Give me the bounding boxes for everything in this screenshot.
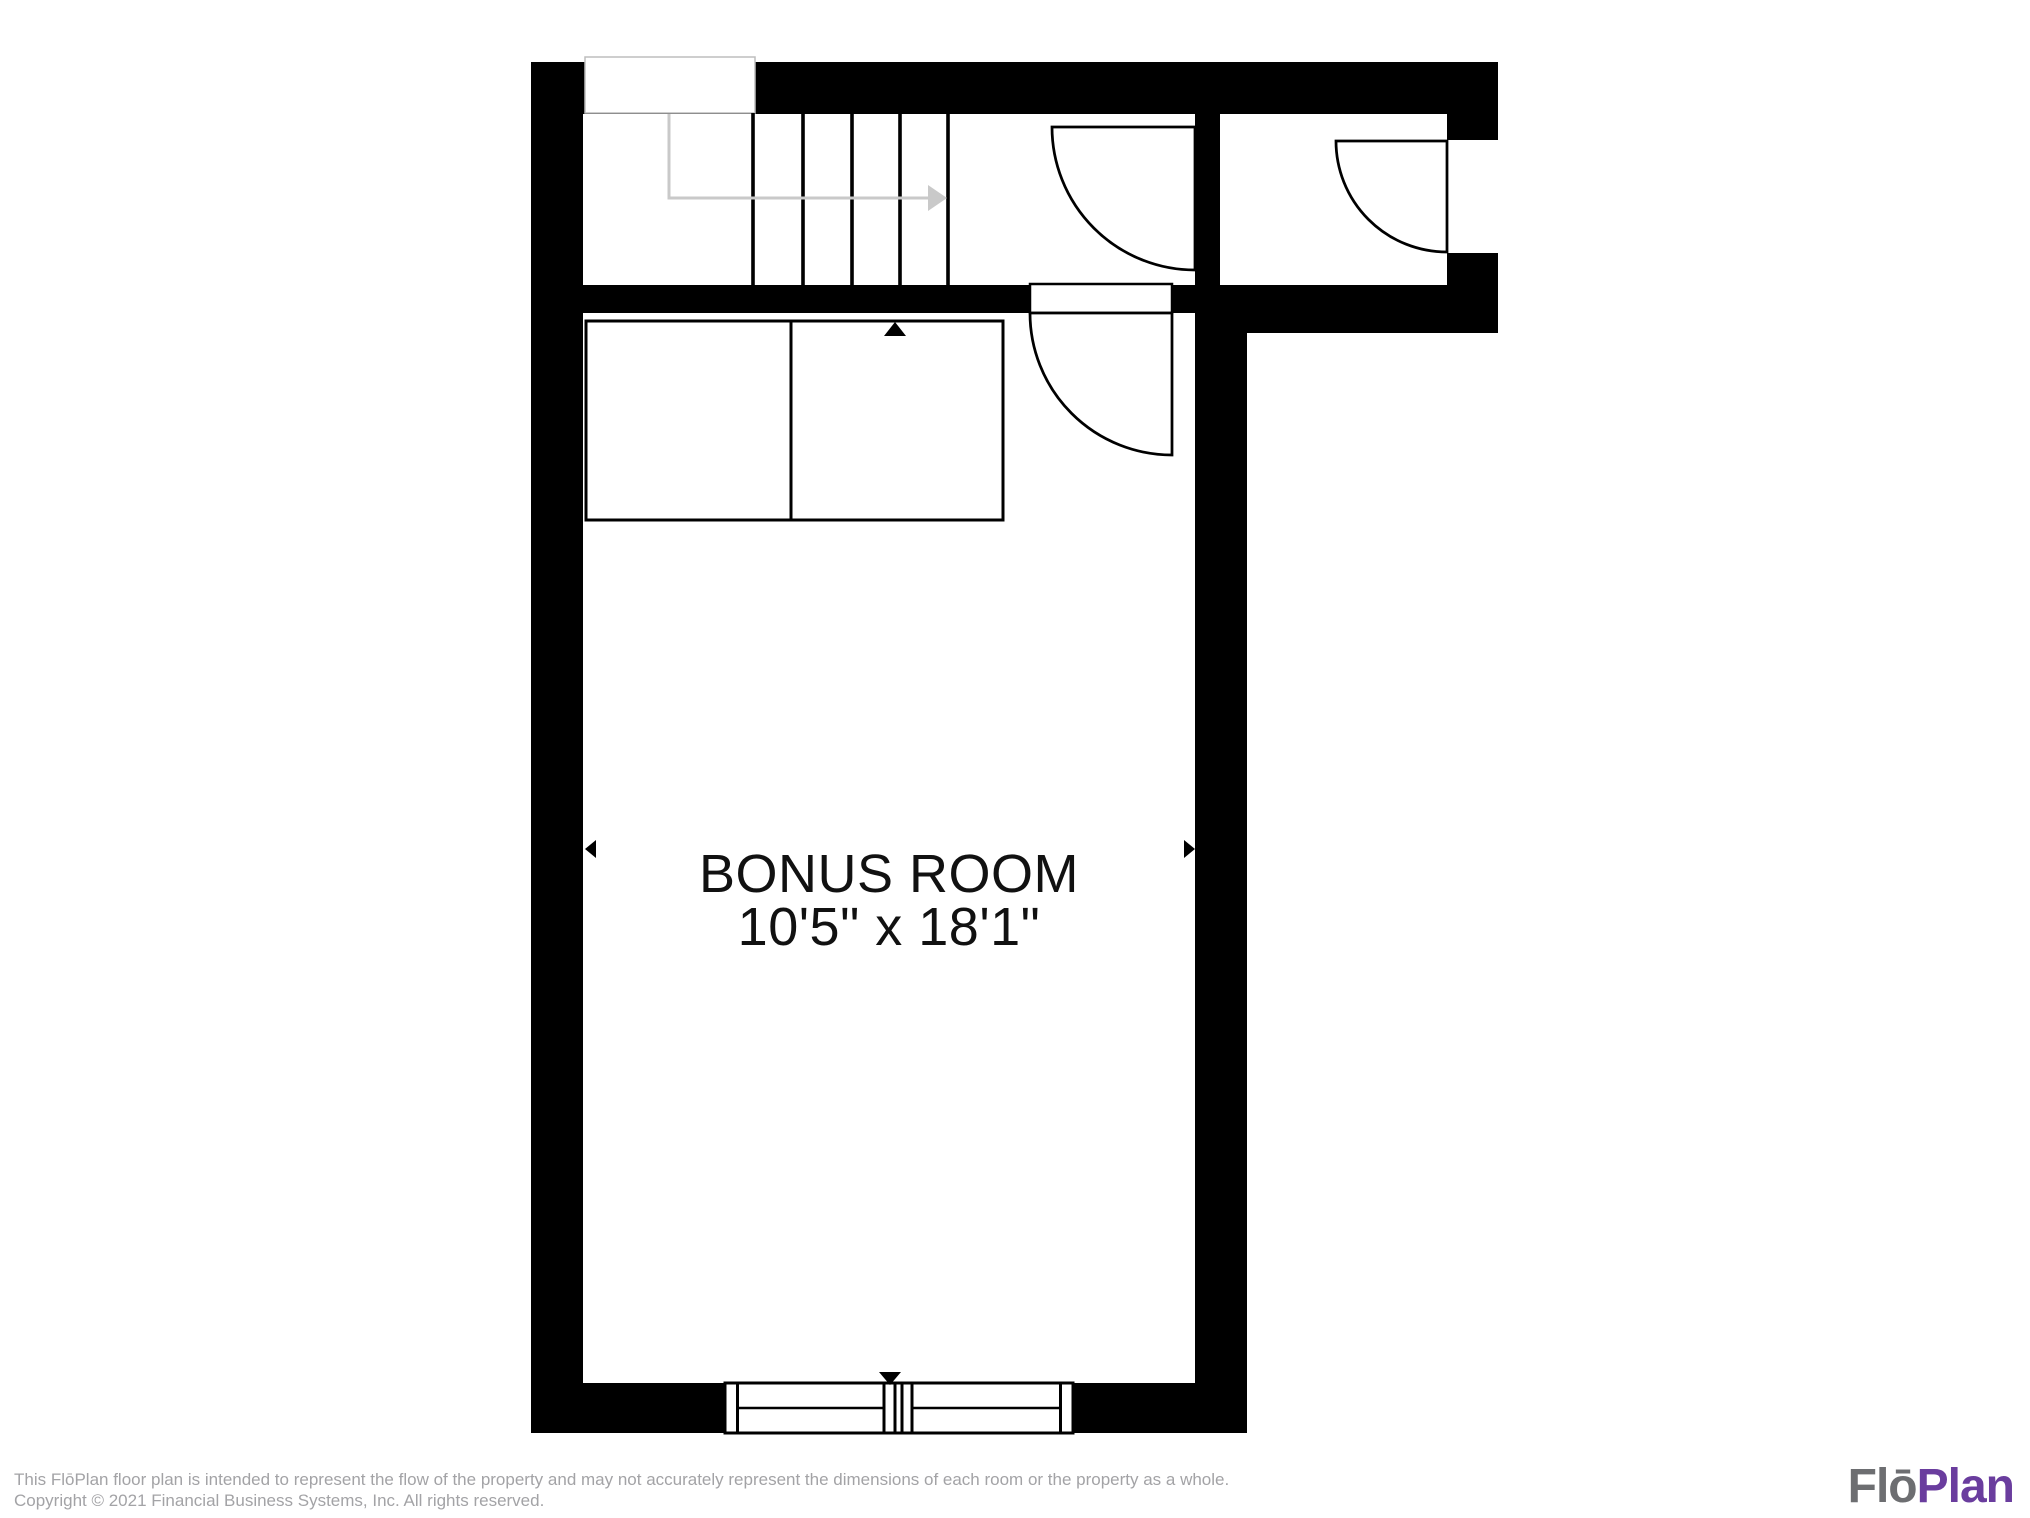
stair-direction-indicator xyxy=(669,114,947,211)
room-name: BONUS ROOM xyxy=(583,848,1195,901)
closet-compartment-left xyxy=(586,321,791,520)
wall-left xyxy=(531,62,583,1433)
door-swing-bonus-room xyxy=(1030,313,1172,455)
footer-copyright: Copyright © 2021 Financial Business Syst… xyxy=(14,1490,1229,1511)
dimension-arrow-up-icon xyxy=(884,322,906,336)
floplan-logo: FlōPlan xyxy=(1848,1459,2014,1514)
closet xyxy=(586,321,1003,520)
page-background: BONUS ROOM 10'5" x 18'1" This FlōPlan fl… xyxy=(0,0,2030,1518)
window-assembly xyxy=(725,1383,1073,1433)
stair-top-notch xyxy=(585,57,755,113)
stair-direction-path xyxy=(669,114,929,198)
door-swing-upper-right-room xyxy=(1336,141,1447,252)
room-dimensions: 10'5" x 18'1" xyxy=(583,901,1195,954)
closet-compartment-right xyxy=(791,321,1003,520)
wall-right-bonus-room xyxy=(1195,285,1247,1433)
footer-disclaimer: This FlōPlan floor plan is intended to r… xyxy=(14,1469,1229,1490)
door-swing-landing xyxy=(1052,127,1195,270)
doorway-opening-bonus-room xyxy=(1030,284,1172,313)
room-label: BONUS ROOM 10'5" x 18'1" xyxy=(583,848,1195,954)
floplan-logo-plan: Plan xyxy=(1917,1460,2014,1513)
stair-tread-line xyxy=(946,113,950,285)
walls xyxy=(531,62,1498,1433)
footer: This FlōPlan floor plan is intended to r… xyxy=(14,1469,1229,1511)
stair-direction-arrow-icon xyxy=(928,185,947,211)
doorway-opening-right-wall xyxy=(1447,140,1498,253)
floplan-logo-flo: Flō xyxy=(1848,1460,1917,1513)
wall-landing-stub xyxy=(1195,113,1220,285)
floor-plan-diagram xyxy=(0,0,2030,1518)
